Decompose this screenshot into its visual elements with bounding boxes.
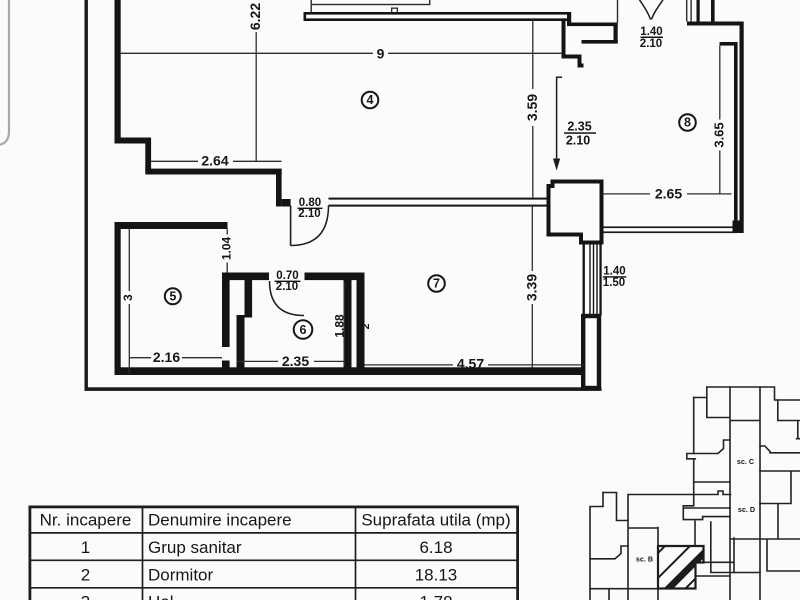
svg-text:4.57: 4.57 [457, 356, 484, 372]
svg-text:0.70: 0.70 [276, 270, 298, 282]
svg-text:2.65: 2.65 [655, 186, 682, 202]
svg-text:Suprafata utila (mp): Suprafata utila (mp) [361, 511, 510, 530]
svg-text:1.40: 1.40 [640, 26, 662, 38]
svg-text:1: 1 [81, 538, 90, 557]
svg-text:6.22: 6.22 [247, 3, 263, 30]
svg-text:3: 3 [81, 593, 90, 600]
svg-text:1.50: 1.50 [603, 277, 625, 289]
svg-text:8: 8 [684, 116, 691, 130]
svg-text:2.35: 2.35 [282, 353, 309, 369]
svg-text:Nr. incapere: Nr. incapere [40, 511, 132, 530]
svg-text:3: 3 [121, 294, 135, 301]
svg-text:2.16: 2.16 [153, 349, 180, 365]
svg-text:2.64: 2.64 [201, 153, 228, 169]
svg-text:Grup sanitar: Grup sanitar [148, 538, 242, 557]
svg-text:Dormitor: Dormitor [148, 566, 214, 585]
svg-text:sc. D: sc. D [738, 505, 755, 514]
svg-text:2.10: 2.10 [640, 38, 662, 50]
svg-text:18.13: 18.13 [415, 566, 458, 585]
svg-text:4: 4 [367, 93, 374, 107]
svg-text:0.80: 0.80 [299, 197, 321, 209]
svg-text:6.18: 6.18 [419, 538, 452, 557]
svg-text:3.65: 3.65 [712, 122, 727, 147]
svg-text:7: 7 [433, 277, 440, 291]
svg-text:Denumire incapere: Denumire incapere [148, 511, 292, 530]
svg-text:2.10: 2.10 [276, 281, 298, 293]
svg-text:sc. C: sc. C [737, 457, 754, 466]
svg-text:9: 9 [377, 46, 385, 62]
svg-text:3.39: 3.39 [524, 274, 540, 301]
svg-text:6: 6 [300, 323, 307, 337]
svg-text:2.10: 2.10 [298, 208, 320, 220]
svg-text:Hol: Hol [148, 593, 174, 600]
svg-text:3.59: 3.59 [524, 94, 540, 121]
svg-text:1.88: 1.88 [333, 314, 347, 338]
svg-text:2.35: 2.35 [567, 120, 591, 134]
svg-text:1.04: 1.04 [220, 236, 234, 260]
svg-text:2.10: 2.10 [566, 134, 590, 148]
svg-text:2: 2 [360, 323, 372, 329]
svg-text:5: 5 [169, 290, 176, 304]
svg-text:2: 2 [81, 566, 90, 585]
svg-text:1.40: 1.40 [603, 266, 625, 278]
svg-text:sc. B: sc. B [636, 555, 653, 564]
svg-text:1.78: 1.78 [419, 593, 452, 600]
